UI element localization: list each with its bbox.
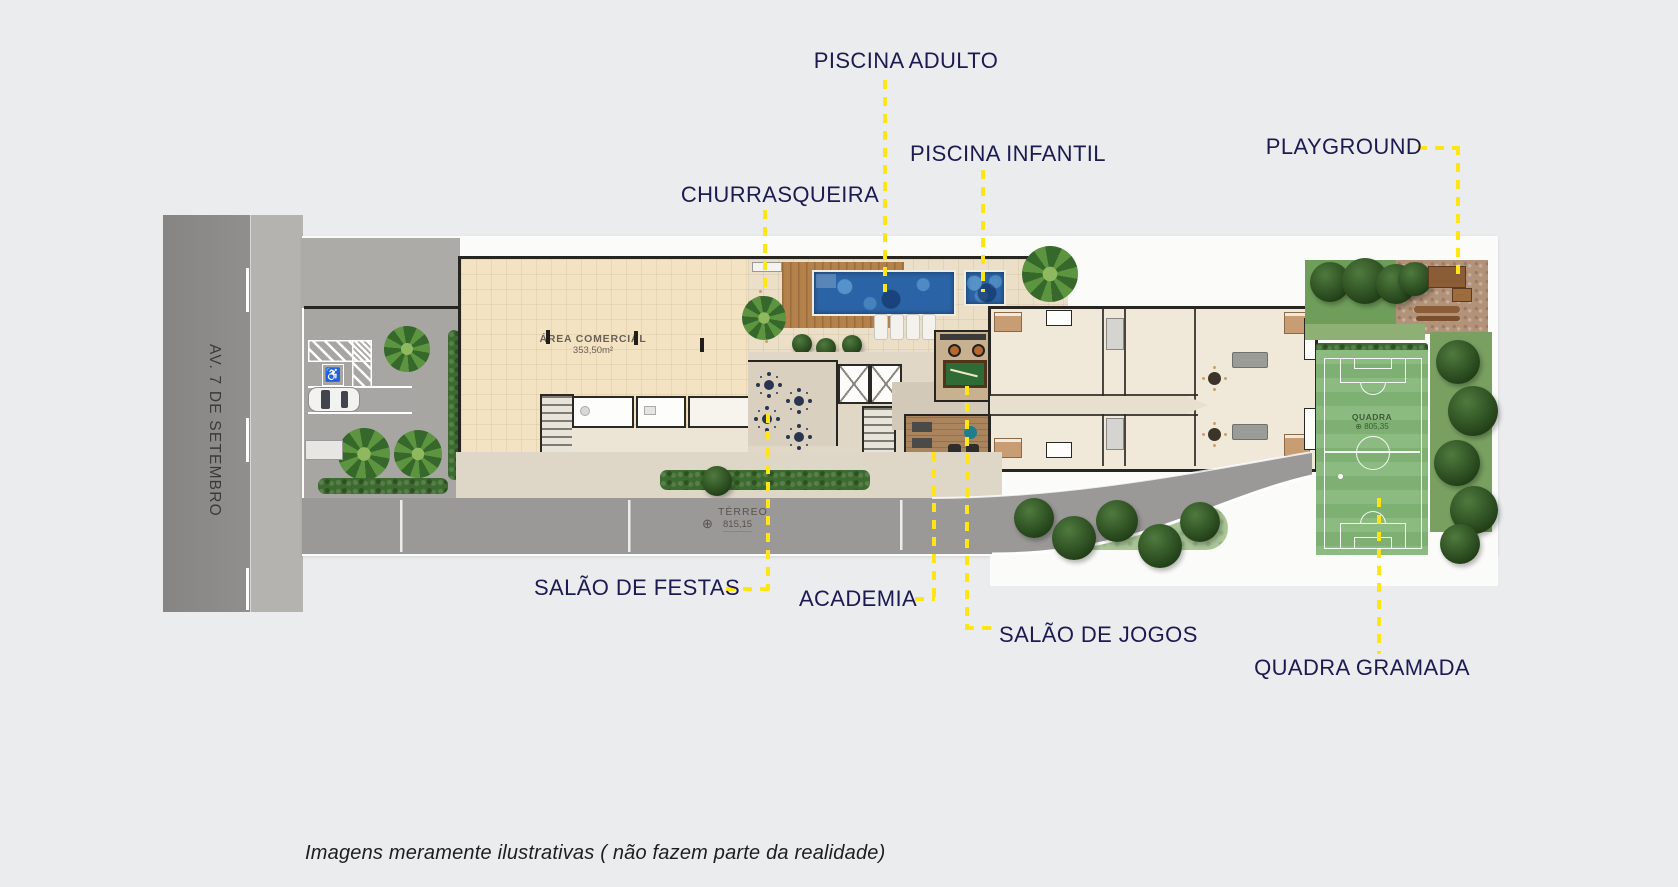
quadra-label: QUADRA [1346,412,1398,422]
pool-steps [816,274,836,288]
commercial-area-title: ÁREA COMERCIAL [523,333,663,345]
quadra-level-value: 805,35 [1364,422,1388,431]
leader-line-quadra-gramada [1377,498,1381,654]
soccer-ball [1338,474,1343,479]
leader-line-academia [915,597,935,601]
no-parking-hatch [352,340,372,388]
corridor-arrow [990,396,1208,414]
tree [1434,440,1480,486]
goal-box [1354,537,1392,548]
sink [644,406,656,415]
leader-line-playground [1418,146,1460,150]
restroom [636,396,686,428]
bar-stool [948,344,961,357]
level-marker-icon: ⊕ [1355,422,1362,431]
commercial-area-size: 353,50m² [523,345,663,356]
play-structure [1452,288,1472,302]
callout-salao-de-jogos: SALÃO DE JOGOS [999,622,1198,648]
leader-line-churrasqueira [763,210,767,294]
sofa [1232,352,1268,368]
kitchen-counter [1106,318,1124,350]
terreo-level-value: 815,15 [723,519,752,532]
kids-pool [964,270,1006,306]
bar-stool [972,344,985,357]
terreo-label: TÉRREO [718,506,768,518]
car-windshield [321,390,330,409]
palm-tree [1022,246,1078,302]
elevator [838,364,870,404]
log-bench [1416,316,1460,321]
weight-bench [912,422,932,432]
tree [1180,502,1220,542]
tree [1448,386,1498,436]
disabled-parking-icon: ♿ [322,364,344,386]
callout-quadra-gramada: QUADRA GRAMADA [1254,655,1470,681]
play-structure [1428,266,1466,288]
party-table [794,396,804,406]
road-curb-mark [246,418,249,462]
apartment-wall [1102,306,1104,466]
stairs [862,406,896,456]
billiard-table [943,360,987,388]
tree [1436,340,1480,384]
dining-table [1208,428,1221,441]
leader-line-piscina-infantil [981,170,985,292]
sidewalk [250,215,303,612]
car [309,388,359,411]
callout-churrasqueira: CHURRASQUEIRA [681,182,879,208]
tree [1014,498,1054,538]
apartment-bath [1046,310,1072,326]
restroom [572,396,634,428]
road-curb-mark [246,568,249,610]
stairs [540,394,574,456]
log-bench [1414,306,1460,313]
party-table [794,432,804,442]
tree [1398,262,1432,296]
leader-line-piscina-adulto [883,80,887,292]
callout-playground: PLAYGROUND [1266,134,1422,160]
tree [1440,524,1480,564]
disclaimer-text: Imagens meramente ilustrativas ( não faz… [305,842,885,865]
apartment-wall [988,414,1198,416]
party-room [748,360,838,446]
apartment-wall [1124,306,1126,466]
level-marker-icon: ⊕ [702,516,713,532]
sun-lounger [890,314,904,340]
leader-line-salao-de-jogos [965,386,969,630]
sun-lounger [874,314,888,340]
parking-stall-line [308,412,412,414]
tree [1052,516,1096,560]
callout-piscina-infantil: PISCINA INFANTIL [910,141,1106,167]
shrub [792,334,812,354]
street-name-label: AV. 7 DE SETEMBRO [189,343,223,518]
bar-counter [940,334,986,340]
callout-piscina-adulto: PISCINA ADULTO [814,48,999,74]
apartment-wall [988,394,1198,396]
field-center-circle [1356,436,1390,470]
tree [1096,500,1138,542]
quadra-level-annotation: QUADRA ⊕ 805,35 [1346,412,1398,431]
leader-line-salao-de-festas [766,414,770,590]
weight-bench [912,438,932,448]
leader-line-academia [932,452,936,599]
leader-line-salao-de-jogos [965,626,995,630]
callout-salao-de-festas: SALÃO DE FESTAS [534,575,740,601]
car-rear-glass [341,391,348,408]
quadra-level-row: ⊕ 805,35 [1346,422,1398,431]
apartments-block [988,306,1318,472]
palm-tree [742,296,786,340]
column-mark [546,330,550,344]
column-mark [634,331,638,345]
kitchen-counter [1106,418,1124,450]
playground-grass-strip [1305,324,1425,340]
dining-table [1208,372,1221,385]
bed [994,312,1022,332]
balcony [1304,408,1316,450]
callout-academia: ACADEMIA [799,586,917,612]
road-curb-mark [246,268,249,312]
sofa [1232,424,1268,440]
column-mark [700,338,704,352]
apartment-wall [1194,306,1196,466]
toilet [580,406,590,416]
service-room [688,396,750,428]
tree [1138,524,1182,568]
site-plan-canvas: AV. 7 DE SETEMBRO ♿ ÁREA COMERCIAL 353,5… [0,0,1678,887]
leader-line-playground [1456,146,1460,278]
barbecue-counter [752,262,782,272]
goal-box [1354,358,1392,369]
cue-stick [950,369,978,377]
commercial-area-label: ÁREA COMERCIAL 353,50m² [523,333,663,356]
palm-tree [384,326,430,372]
sun-lounger [906,314,920,340]
entry-driveway [302,238,460,310]
party-table [764,380,774,390]
